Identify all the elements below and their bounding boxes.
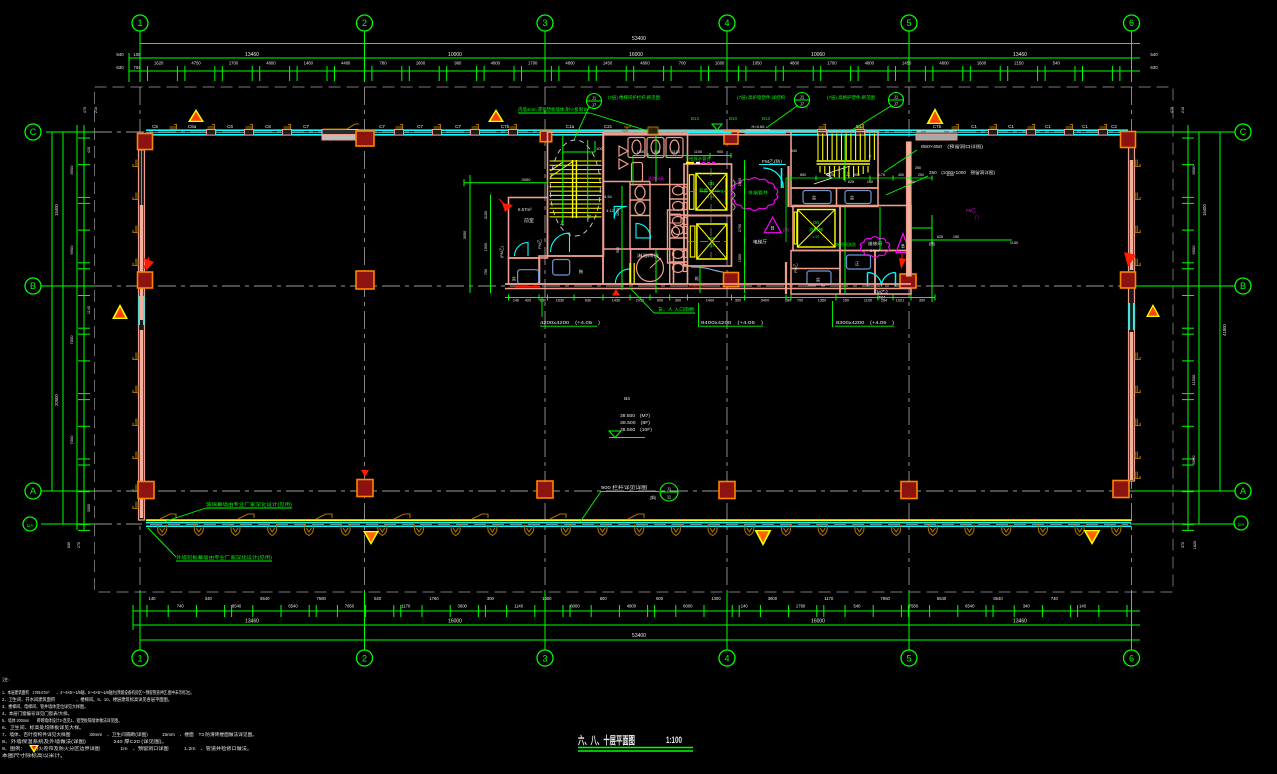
- svg-text:210: 210: [94, 107, 98, 113]
- svg-text:4800: 4800: [266, 61, 276, 66]
- svg-text:540: 540: [1053, 61, 1061, 66]
- svg-text:4800: 4800: [565, 61, 575, 66]
- svg-text:C7b: C7b: [501, 124, 510, 129]
- svg-text:2: 2: [362, 654, 367, 664]
- svg-text:6000: 6000: [570, 604, 580, 609]
- svg-text:1625: 1625: [826, 173, 834, 177]
- svg-text:5: 5: [906, 654, 911, 664]
- svg-text:780: 780: [380, 61, 388, 66]
- svg-text:B: B: [1240, 281, 1246, 291]
- svg-text:540: 540: [854, 604, 862, 609]
- svg-text:C6: C6: [227, 124, 233, 129]
- svg-text:9、图例： 防火卷帘及防火分区边界详图 1m 、预留: 9、图例： 防火卷帘及防火分区边界详图 1m 、预留洞口详图 1.2m 、管道井…: [2, 745, 252, 752]
- svg-text:1700: 1700: [528, 61, 538, 66]
- svg-text:5、墙体 200mm 砖砌墙体设计2-直见1、铝塑板隔墙体: 5、墙体 200mm 砖砌墙体设计2-直见1、铝塑板隔墙体做法详见图。: [2, 717, 122, 724]
- svg-text:J1: J1: [800, 95, 805, 100]
- svg-text:1140: 1140: [87, 306, 91, 314]
- svg-text:(7层) 高格护塑件,刷见图: (7层) 高格护塑件,刷见图: [827, 94, 875, 101]
- svg-text:250: 250: [918, 173, 924, 177]
- svg-text:3: 3: [542, 18, 547, 28]
- svg-text:C: C: [1240, 127, 1247, 137]
- svg-text:340: 340: [1023, 604, 1031, 609]
- svg-text:B10: B10: [729, 116, 737, 121]
- svg-text:1: 1: [137, 18, 142, 28]
- svg-text:6、卫生间、标高处均降板详见大样。: 6、卫生间、标高处均降板详见大样。: [2, 724, 84, 731]
- svg-text:13460: 13460: [1013, 619, 1027, 625]
- svg-text:950: 950: [854, 173, 860, 177]
- svg-text:外墙铝板幕墙由专业厂家深化设计(见用): 外墙铝板幕墙由专业厂家深化设计(见用): [176, 554, 273, 561]
- svg-text:4600: 4600: [640, 61, 650, 66]
- svg-text:13460: 13460: [245, 52, 259, 58]
- svg-text:1620: 1620: [1193, 541, 1197, 549]
- svg-text:4: 4: [724, 18, 729, 28]
- svg-text:拖: 拖: [579, 268, 583, 275]
- svg-text:4460: 4460: [341, 61, 351, 66]
- svg-text:C7: C7: [417, 124, 423, 129]
- svg-text:前室: 前室: [524, 217, 534, 224]
- svg-text:630: 630: [540, 299, 546, 303]
- svg-text:270: 270: [77, 542, 81, 548]
- svg-text:3300: 3300: [87, 504, 91, 512]
- svg-text:1900: 1900: [484, 243, 488, 251]
- svg-text:8400x4200 (+4.05 ): 8400x4200 (+4.05 ): [701, 320, 764, 325]
- svg-text:4.12: 4.12: [606, 209, 613, 213]
- svg-text:C7: C7: [455, 124, 461, 129]
- svg-text:1/A: 1/A: [1238, 522, 1245, 527]
- svg-text:B13: B13: [691, 116, 699, 121]
- svg-text:300: 300: [654, 150, 660, 154]
- svg-text:500: 500: [616, 247, 620, 253]
- svg-text:6900: 6900: [69, 245, 74, 255]
- svg-text:1700: 1700: [229, 61, 239, 66]
- svg-text:7000: 7000: [69, 335, 74, 345]
- svg-text:10060: 10060: [811, 52, 825, 58]
- svg-text:OB: OB: [813, 220, 819, 225]
- svg-text:J1: J1: [667, 487, 672, 492]
- svg-text:1021: 1021: [896, 299, 904, 303]
- svg-text:本图尺寸除标高以米计。: 本图尺寸除标高以米计。: [2, 752, 66, 759]
- svg-text:2、卫生间、开水间建筑面积 、楼梯间。8、10、楼层: 2、卫生间、开水间建筑面积 、楼梯间。8、10、楼层建筑标高详见各层平面图。: [2, 696, 172, 703]
- svg-text:1/A: 1/A: [27, 523, 34, 528]
- svg-text:850: 850: [800, 173, 806, 177]
- svg-text:8300x4200 (+4.05 ): 8300x4200 (+4.05 ): [836, 320, 895, 325]
- svg-text:6000: 6000: [683, 604, 693, 609]
- svg-text:3600: 3600: [768, 596, 778, 601]
- svg-text:540: 540: [1150, 52, 1158, 57]
- svg-text:内墙4mm 厚铝塑板墙体,耐火极限1h: 内墙4mm 厚铝塑板墙体,耐火极限1h: [518, 106, 588, 113]
- svg-text:41800: 41800: [1222, 324, 1227, 336]
- svg-text:淋浴间洗: 淋浴间洗: [637, 252, 660, 259]
- svg-text:300: 300: [919, 299, 925, 303]
- svg-text:1600: 1600: [416, 61, 426, 66]
- svg-text:(7层) 高护窗塑件,详结构: (7层) 高护窗塑件,详结构: [737, 94, 785, 101]
- svg-text:FM乙: FM乙: [792, 263, 798, 273]
- svg-text:150: 150: [953, 235, 959, 239]
- svg-text:630: 630: [585, 299, 591, 303]
- svg-text:6: 6: [1129, 18, 1134, 28]
- svg-text:630: 630: [1150, 65, 1158, 70]
- svg-text:420: 420: [87, 147, 91, 153]
- svg-text:(FM乙): (FM乙): [499, 245, 504, 258]
- svg-text:38.500 (8F): 38.500 (8F): [620, 420, 651, 425]
- svg-text:250: 250: [909, 180, 915, 184]
- svg-text:450: 450: [898, 173, 904, 177]
- svg-text:1760: 1760: [429, 596, 439, 601]
- svg-text:C2c: C2c: [604, 124, 613, 129]
- svg-text:消防梯: 消防梯: [809, 226, 823, 232]
- svg-text:250 (1000×1000 预留洞详图): 250 (1000×1000 预留洞详图): [929, 169, 996, 176]
- svg-text:16000: 16000: [811, 619, 825, 625]
- svg-text:1380: 1380: [637, 150, 645, 154]
- svg-text:1450: 1450: [902, 61, 912, 66]
- svg-text:3600: 3600: [458, 604, 468, 609]
- svg-text:洗消间具: 洗消间具: [648, 175, 664, 181]
- svg-text:7650: 7650: [345, 604, 355, 609]
- svg-text:C1: C1: [1008, 124, 1014, 129]
- svg-text:1:100: 1:100: [666, 735, 682, 746]
- svg-text:6540: 6540: [288, 604, 298, 609]
- svg-text:704: 704: [134, 65, 142, 70]
- svg-text:3400: 3400: [761, 299, 769, 303]
- svg-text:625: 625: [848, 180, 854, 184]
- svg-text:8500: 8500: [1191, 165, 1196, 175]
- svg-text:4800: 4800: [790, 61, 800, 66]
- svg-text:7580: 7580: [909, 604, 919, 609]
- svg-text:C: C: [30, 127, 37, 137]
- svg-text:A: A: [30, 486, 36, 496]
- svg-text:2150: 2150: [1014, 61, 1024, 66]
- svg-text:6540: 6540: [993, 596, 1003, 601]
- svg-text:940: 940: [791, 149, 797, 153]
- svg-text:740: 740: [177, 604, 185, 609]
- svg-text:4750: 4750: [191, 61, 201, 66]
- svg-text:100: 100: [134, 52, 142, 57]
- svg-text:3、楼梯间、电梯间、管井墙体定位详见大样图。: 3、楼梯间、电梯间、管井墙体定位详见大样图。: [2, 703, 88, 710]
- svg-text:470: 470: [1170, 107, 1174, 113]
- svg-text:J7: J7: [592, 103, 597, 108]
- svg-text:3950: 3950: [463, 231, 467, 239]
- svg-text:A: A: [1240, 486, 1246, 496]
- svg-text:1350: 1350: [818, 299, 826, 303]
- svg-text:1170: 1170: [824, 596, 834, 601]
- svg-text:正: 正: [855, 261, 859, 266]
- svg-text:370: 370: [1181, 542, 1185, 548]
- svg-text:排烟管井: 排烟管井: [748, 189, 768, 196]
- svg-text:1400: 1400: [711, 596, 721, 601]
- svg-text:53400: 53400: [632, 36, 646, 42]
- svg-text:38.500 (M7): 38.500 (M7): [620, 413, 651, 418]
- svg-text:2: 2: [362, 18, 367, 28]
- svg-text:FM乙: FM乙: [536, 239, 542, 249]
- svg-text:B13: B13: [762, 116, 770, 121]
- svg-text:7580: 7580: [317, 596, 327, 601]
- svg-text:6540: 6540: [232, 604, 242, 609]
- svg-text:4800: 4800: [865, 61, 875, 66]
- svg-text:J1: J1: [592, 96, 597, 101]
- svg-text:1450: 1450: [603, 61, 613, 66]
- svg-text:7、墙体、百叶窗构件详见大样图 30mm 、卫生间隔断: 7、墙体、百叶窗构件详见大样图 30mm 、卫生间隔断(详图) 15mm 、楼面…: [2, 731, 257, 738]
- svg-text:上: 上: [560, 219, 565, 225]
- svg-text:C1: C1: [971, 124, 977, 129]
- svg-text:4: 4: [724, 654, 729, 664]
- svg-text:470: 470: [83, 107, 87, 113]
- svg-text:420: 420: [525, 299, 531, 303]
- svg-text:3300: 3300: [1191, 455, 1196, 465]
- svg-text:1500: 1500: [738, 254, 742, 262]
- svg-text:6540: 6540: [260, 596, 270, 601]
- svg-text:J1: J1: [894, 95, 899, 100]
- svg-text:B4: B4: [624, 396, 630, 402]
- svg-text:540: 540: [374, 596, 382, 601]
- svg-text:7000: 7000: [69, 435, 74, 445]
- svg-text:C7: C7: [379, 124, 385, 129]
- svg-text:300: 300: [487, 596, 495, 601]
- svg-text:6.9m²: 6.9m²: [870, 248, 881, 253]
- svg-text:注:: 注:: [2, 677, 10, 682]
- svg-text:1175: 1175: [877, 173, 885, 177]
- svg-text:340: 340: [205, 596, 213, 601]
- svg-text:1150: 1150: [1010, 241, 1018, 245]
- svg-text:1600: 1600: [715, 61, 725, 66]
- svg-text:740: 740: [1051, 596, 1059, 601]
- svg-text:(7层) 楼梯间护栏杆,刷见图: (7层) 楼梯间护栏杆,刷见图: [608, 94, 660, 101]
- svg-text:8、外墙保温系统及外墙做法(详图) 240 厚C20: 8、外墙保温系统及外墙做法(详图) 240 厚C20 (详见图)。: [2, 738, 167, 745]
- svg-text:850×450 (预留洞口详图): 850×450 (预留洞口详图): [921, 143, 984, 150]
- svg-text:C1: C1: [1045, 124, 1051, 129]
- svg-text:3050: 3050: [522, 177, 532, 182]
- svg-text:FM乙(防): FM乙(防): [762, 158, 783, 165]
- svg-text:6540: 6540: [965, 604, 975, 609]
- svg-text:540: 540: [116, 52, 124, 57]
- svg-text:4600: 4600: [491, 61, 501, 66]
- svg-text:J7: J7: [800, 102, 805, 107]
- svg-text:C1: C1: [1082, 124, 1088, 129]
- svg-text:(斜): (斜): [650, 494, 657, 500]
- svg-text:6900: 6900: [1191, 245, 1196, 255]
- svg-text:750: 750: [484, 269, 488, 275]
- svg-text:6.57m²: 6.57m²: [518, 207, 532, 212]
- svg-text:B: B: [30, 281, 36, 291]
- svg-text:900 栏杆详见详图: 900 栏杆详见详图: [601, 484, 648, 491]
- svg-text:20500: 20500: [54, 394, 59, 406]
- svg-text:1.5T: 1.5T: [812, 234, 821, 239]
- svg-text:2000: 2000: [738, 178, 742, 186]
- svg-text:C2: C2: [1111, 124, 1117, 129]
- svg-text:13460: 13460: [1013, 52, 1027, 58]
- svg-text:11: 11: [667, 495, 672, 500]
- svg-text:1170: 1170: [401, 604, 411, 609]
- svg-text:600: 600: [600, 596, 608, 601]
- svg-text:1760: 1760: [796, 604, 806, 609]
- svg-text:1430: 1430: [612, 299, 620, 303]
- svg-text:15400: 15400: [54, 204, 59, 216]
- svg-text:5: 5: [906, 18, 911, 28]
- svg-text:1: 1: [137, 654, 142, 664]
- svg-text:11500: 11500: [1191, 374, 1196, 386]
- svg-text:1400: 1400: [706, 299, 714, 303]
- svg-text:1100: 1100: [694, 150, 702, 154]
- svg-text:140: 140: [1079, 604, 1087, 609]
- svg-text:700: 700: [797, 299, 803, 303]
- svg-text:玻璃幕墙由专业厂家深化设计(见用): 玻璃幕墙由专业厂家深化设计(见用): [206, 501, 293, 508]
- svg-text:900: 900: [717, 150, 723, 154]
- svg-text:1140: 1140: [514, 604, 524, 609]
- svg-text:4800: 4800: [627, 604, 637, 609]
- svg-text:1100: 1100: [946, 173, 954, 177]
- svg-text:150: 150: [867, 180, 873, 184]
- svg-text:1620: 1620: [154, 61, 164, 66]
- svg-text:货、人 入口雨棚: 货、人 入口雨棚: [658, 306, 695, 313]
- svg-text:H=0.66: H=0.66: [751, 124, 765, 129]
- svg-text:1630: 1630: [556, 299, 564, 303]
- svg-text:625: 625: [937, 235, 943, 239]
- svg-text:C6a: C6a: [188, 124, 197, 129]
- svg-text:140: 140: [513, 299, 519, 303]
- svg-text:(施): (施): [929, 241, 936, 246]
- svg-text:FM乙: FM乙: [966, 207, 976, 213]
- svg-text:门: 门: [975, 215, 979, 220]
- svg-text:C6: C6: [265, 124, 271, 129]
- svg-text:150: 150: [843, 299, 849, 303]
- svg-text:J7: J7: [894, 102, 899, 107]
- svg-text:上: 上: [846, 170, 850, 176]
- svg-text:1400: 1400: [542, 596, 552, 601]
- svg-text:13460: 13460: [245, 619, 259, 625]
- svg-text:6540: 6540: [937, 596, 947, 601]
- svg-text:300: 300: [735, 299, 741, 303]
- svg-text:1700: 1700: [827, 61, 837, 66]
- svg-text:4、本层门窗编号详见门窗表/大样。: 4、本层门窗编号详见门窗表/大样。: [2, 710, 72, 717]
- svg-text:7650: 7650: [881, 596, 891, 601]
- svg-text:C5: C5: [152, 124, 158, 129]
- svg-text:180: 180: [785, 299, 791, 303]
- svg-text:1、本层建筑面积 1769.07m² 、4～5×B～1/B: 1、本层建筑面积 1769.07m² 、4～5×B～1/B轴、5～6×B～1/B…: [2, 689, 194, 696]
- svg-text:F: F: [869, 154, 872, 159]
- svg-text:3150: 3150: [484, 211, 488, 219]
- svg-text:53400: 53400: [632, 633, 646, 639]
- svg-text:250: 250: [915, 166, 921, 170]
- svg-text:700: 700: [679, 61, 687, 66]
- svg-text:16000: 16000: [448, 619, 462, 625]
- svg-text:拖把间洗洗: 拖把间洗洗: [836, 242, 856, 247]
- svg-text:3: 3: [542, 654, 547, 664]
- svg-text:38.500 (10F): 38.500 (10F): [620, 427, 653, 432]
- svg-text:C7b: C7b: [933, 124, 942, 129]
- svg-text:600: 600: [657, 299, 663, 303]
- svg-text:1100: 1100: [672, 150, 680, 154]
- svg-text:630: 630: [116, 65, 124, 70]
- svg-text:140: 140: [741, 604, 749, 609]
- svg-text:2700: 2700: [738, 224, 742, 232]
- svg-text:6: 6: [1129, 654, 1134, 664]
- svg-text:1100: 1100: [864, 299, 872, 303]
- svg-text:960: 960: [454, 61, 462, 66]
- svg-text:4600: 4600: [939, 61, 949, 66]
- svg-text:16000: 16000: [629, 52, 643, 58]
- svg-text:15400: 15400: [1202, 204, 1207, 216]
- svg-text:C7: C7: [303, 124, 309, 129]
- svg-text:1460: 1460: [304, 61, 314, 66]
- svg-text:4.54: 4.54: [604, 195, 611, 199]
- svg-text:1600: 1600: [977, 61, 987, 66]
- svg-text:10000: 10000: [448, 52, 462, 58]
- svg-text:六、八、十层平面图: 六、八、十层平面图: [578, 733, 635, 747]
- svg-text:600: 600: [656, 596, 664, 601]
- svg-text:300: 300: [675, 299, 681, 303]
- svg-text:8500: 8500: [69, 165, 74, 175]
- svg-text:1050: 1050: [752, 61, 762, 66]
- svg-text:210: 210: [1181, 107, 1185, 113]
- svg-text:264: 264: [881, 299, 887, 303]
- svg-text:140: 140: [149, 596, 157, 601]
- svg-text:(消): (消): [783, 227, 790, 232]
- svg-text:630: 630: [67, 542, 71, 548]
- svg-text:4200x4200 (+4.05 ): 4200x4200 (+4.05 ): [540, 320, 601, 325]
- svg-text:1050: 1050: [616, 208, 620, 216]
- svg-text:电梯厅: 电梯厅: [753, 239, 767, 246]
- svg-text:C1a: C1a: [566, 124, 575, 129]
